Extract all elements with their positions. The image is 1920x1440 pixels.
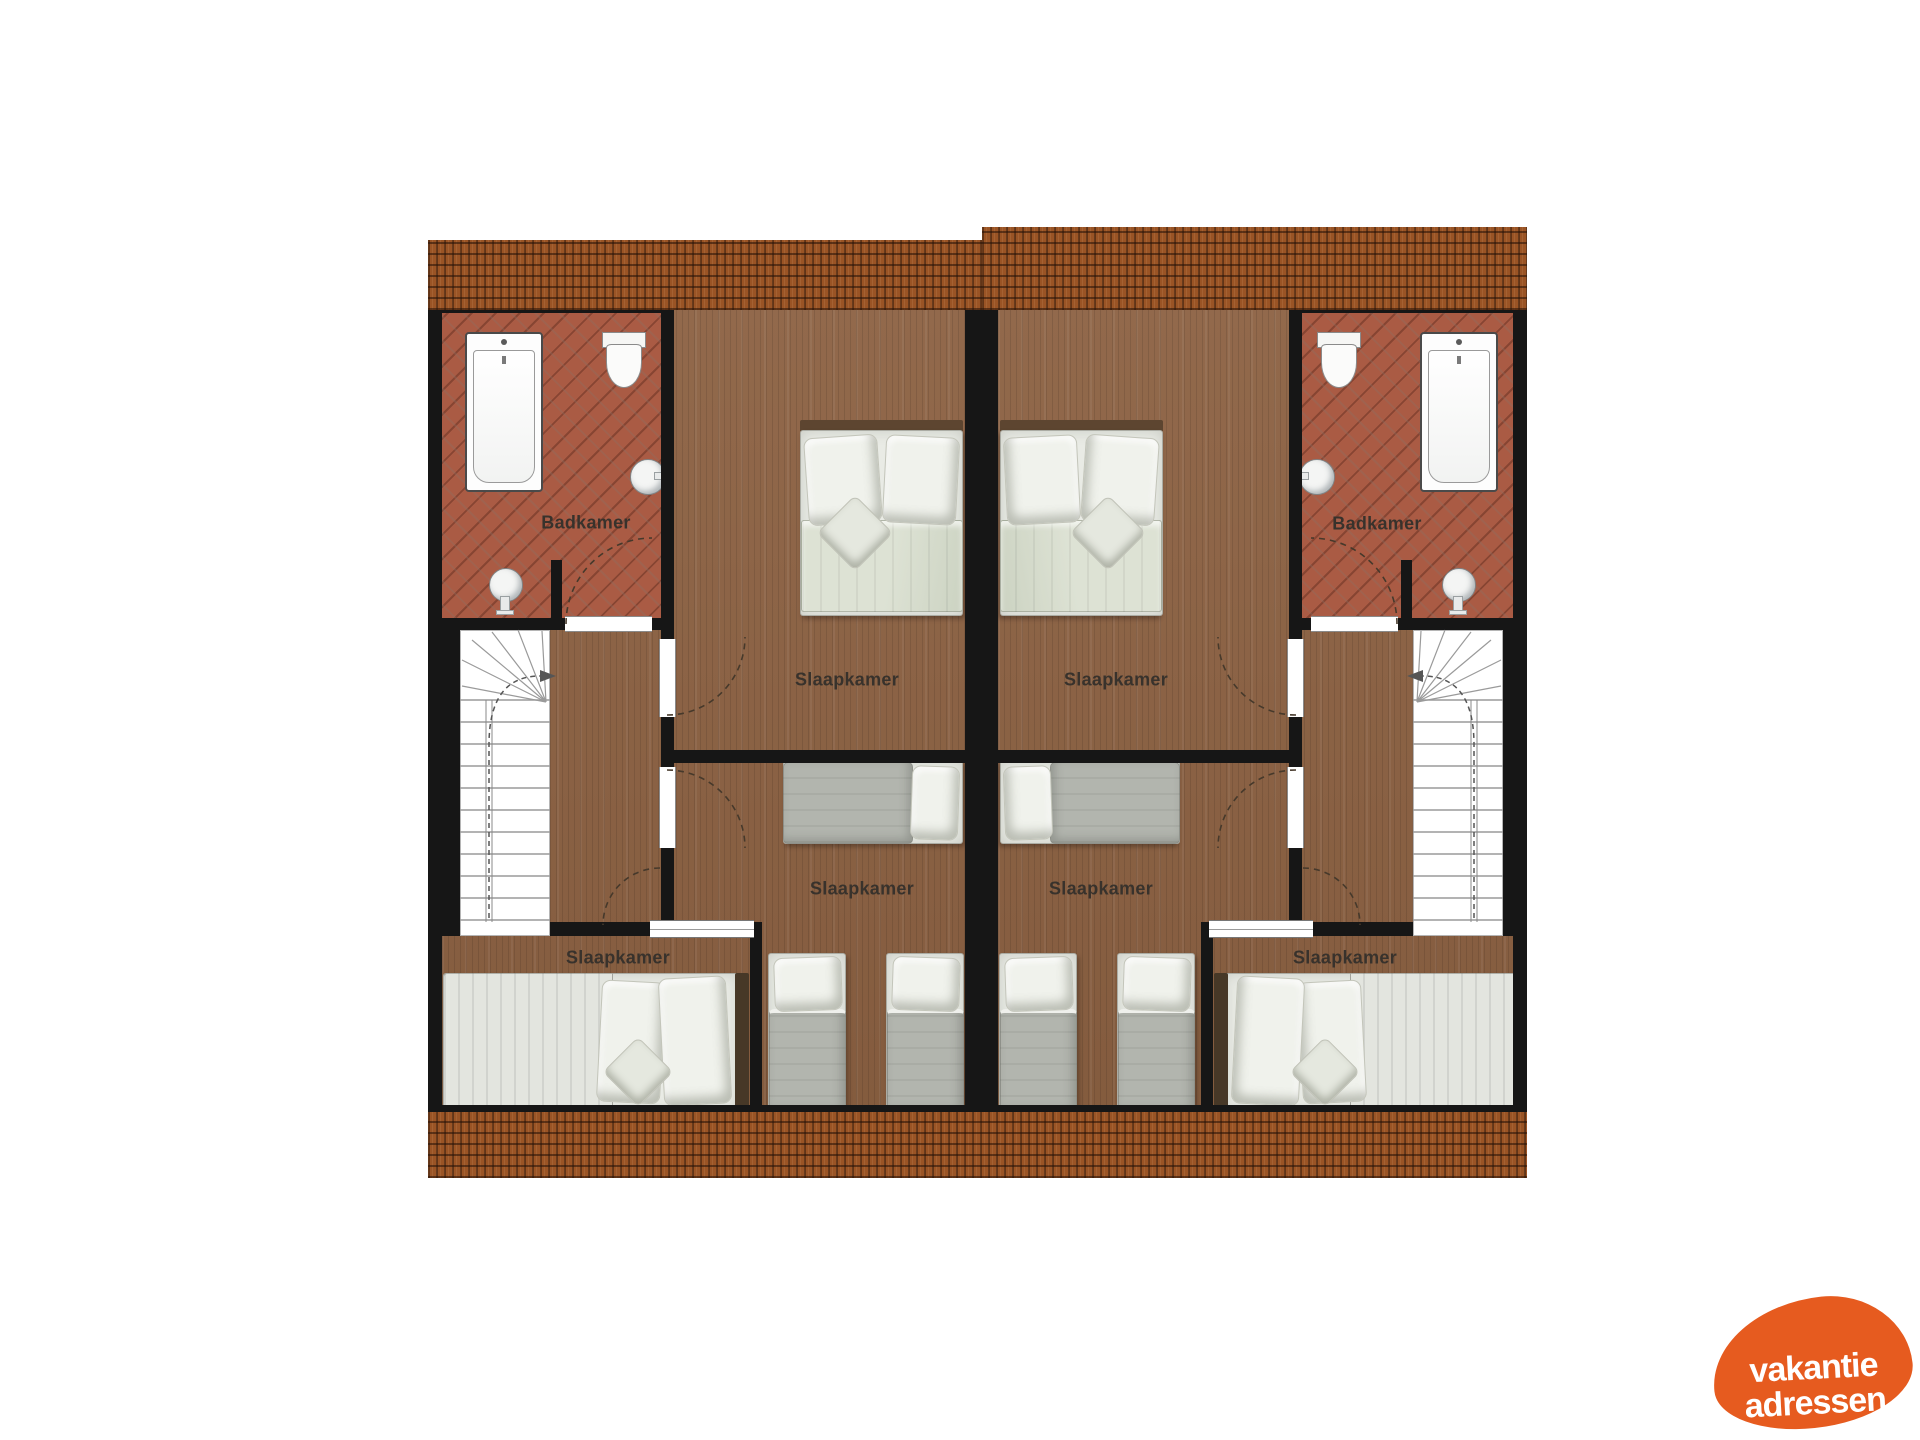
bed-pillow	[1122, 956, 1192, 1012]
door-opening-bathroom-left	[565, 616, 652, 632]
room-label-badkamer-right: Badkamer	[1332, 514, 1421, 535]
bed-blanket	[1050, 762, 1180, 844]
bed-headboard	[735, 973, 749, 1112]
bed-blanket	[769, 1009, 846, 1114]
wall-stair-left	[442, 630, 460, 936]
wall-bedroom3-right	[1201, 922, 1213, 1112]
door-opening-bedroom1-left	[659, 639, 676, 717]
window-opening-right	[1209, 920, 1313, 938]
single-bed-left-bottom-1	[768, 953, 846, 1111]
door-opening-bedroom1-right	[1287, 639, 1304, 717]
room-label-slaapkamer-right-top: Slaapkamer	[1064, 670, 1168, 691]
bed-pillow	[773, 956, 843, 1012]
bed-blanket	[1118, 1009, 1195, 1114]
door-opening-bedroom2-right	[1287, 767, 1304, 848]
logo-line-2: adressen	[1714, 1380, 1916, 1425]
room-label-badkamer-left: Badkamer	[541, 513, 630, 534]
single-bed-right-middle	[1000, 760, 1180, 844]
bathtub-tap-icon	[1456, 339, 1462, 345]
bathtub-basin	[473, 350, 535, 483]
bed-pillow	[910, 765, 961, 841]
toilet-right	[1317, 332, 1361, 388]
double-bed-right-bottom	[1214, 973, 1520, 1112]
bathtub-tap-icon	[501, 339, 507, 345]
roof-tiles-bottom	[428, 1112, 1527, 1178]
wall-bedroom3-left	[750, 922, 762, 1112]
bed-pillow	[1003, 765, 1054, 841]
room-label-slaapkamer-left-bottom: Slaapkamer	[566, 948, 670, 969]
bathtub-right	[1420, 332, 1498, 492]
room-label-slaapkamer-right-middle: Slaapkamer	[1049, 879, 1153, 900]
bed-duvet	[1350, 973, 1520, 1114]
double-bed-right-top	[1000, 420, 1163, 616]
stairs-left	[460, 630, 550, 936]
window-opening-left	[650, 920, 754, 938]
door-opening-bedroom2-left	[659, 767, 676, 848]
wall-stub-right	[1401, 560, 1412, 626]
room-label-slaapkamer-left-top: Slaapkamer	[795, 670, 899, 691]
bed-blanket	[887, 1009, 964, 1114]
single-bed-left-bottom-2	[886, 953, 964, 1111]
vakantieadressen-logo: vakantie adressen	[1706, 1288, 1918, 1438]
wall-outer-right	[1513, 227, 1527, 1112]
bed-pillow	[658, 975, 733, 1106]
single-bed-right-bottom-2	[1117, 953, 1195, 1111]
toilet-bowl	[606, 344, 642, 388]
wall-bedroom1-bottom-right	[998, 750, 1302, 763]
bed-pillow	[1003, 434, 1082, 526]
bed-blanket	[783, 762, 913, 844]
party-wall	[965, 250, 998, 1112]
toilet-bowl	[1321, 344, 1357, 388]
bathtub-drain-icon	[502, 356, 506, 364]
double-bed-left-bottom	[443, 973, 749, 1112]
pedestal-sink-base	[496, 610, 514, 615]
stairs-right	[1413, 630, 1503, 936]
single-bed-left-middle	[783, 760, 963, 844]
roof-tiles-top-left	[428, 240, 982, 310]
wall-bedroom1-bottom-left	[661, 750, 965, 763]
bed-duvet	[443, 973, 613, 1114]
bathtub-basin	[1428, 350, 1490, 483]
wall-outer-bottom	[442, 1105, 1513, 1112]
bathtub-drain-icon	[1457, 356, 1461, 364]
bed-pillow	[891, 956, 961, 1012]
bed-blanket	[1000, 1009, 1077, 1114]
door-opening-bathroom-right	[1311, 616, 1398, 632]
wall-stub-left	[551, 560, 562, 626]
logo-text: vakantie adressen	[1713, 1345, 1916, 1425]
floorplan-page: Badkamer Slaapkamer Slaapkamer Slaapkame…	[0, 0, 1920, 1440]
double-bed-left-top	[800, 420, 963, 616]
wall-outer-left	[428, 240, 442, 1112]
bed-pillow	[1004, 956, 1074, 1012]
toilet-left	[602, 332, 646, 388]
bed-pillow	[882, 434, 961, 526]
roof-tiles-top-right	[982, 227, 1527, 310]
room-label-slaapkamer-left-middle: Slaapkamer	[810, 879, 914, 900]
single-bed-right-bottom-1	[999, 953, 1077, 1111]
room-label-slaapkamer-right-bottom: Slaapkamer	[1293, 948, 1397, 969]
pedestal-sink-base	[1449, 610, 1467, 615]
bed-pillow	[1231, 975, 1306, 1106]
bed-headboard	[1214, 973, 1228, 1112]
bathtub-left	[465, 332, 543, 492]
